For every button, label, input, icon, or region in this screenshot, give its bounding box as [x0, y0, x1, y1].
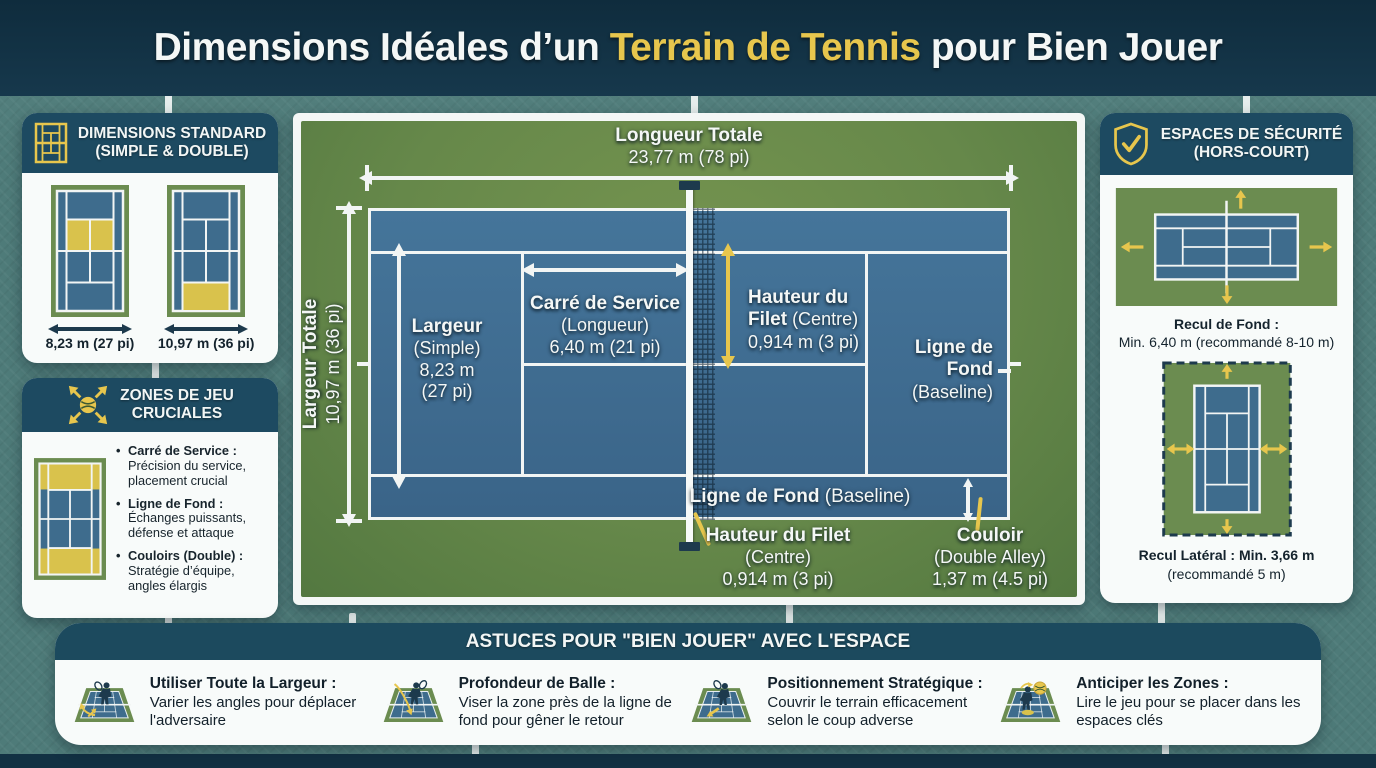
total-width-title: Largeur Totale [301, 299, 321, 430]
label-line: 1,37 m (4.5 pi) [900, 569, 1077, 590]
panel-dimensions-header: DIMENSIONS STANDARD (SIMPLE & DOUBLE) [22, 113, 278, 173]
zones-body: • Carré de Service : Précision du servic… [22, 432, 278, 602]
side-clearance-diagram [1161, 361, 1293, 537]
panel-security-header: ESPACES DE SÉCURITÉ (HORS-COURT) [1100, 113, 1353, 175]
label-line: Ligne de [863, 337, 993, 359]
net-mesh [692, 208, 715, 520]
net-post-cap [679, 181, 700, 190]
shield-check-icon [1111, 121, 1151, 167]
service-box-label: Carré de Service (Longueur) 6,40 m (21 p… [519, 293, 691, 358]
center-mark [1010, 362, 1021, 366]
total-length-label: Longueur Totale 23,77 m (78 pi) [489, 125, 889, 169]
tip-title: Utiliser Toute la Largeur : [150, 675, 378, 694]
singles-width-label: 8,23 m (27 pi) [46, 335, 135, 351]
label-line: Carré de Service [519, 293, 691, 315]
center-mark [357, 362, 368, 366]
zone-desc: Précision du service, placement crucial [128, 458, 246, 488]
doubles-court-diagram [167, 185, 245, 317]
panel-title: ESPACES DE SÉCURITÉ (HORS-COURT) [1161, 126, 1342, 163]
arrow-end-tick [336, 519, 362, 523]
tip-text: Anticiper les Zones : Lire le jeu pour s… [1076, 675, 1304, 731]
tip-text: Profondeur de Balle : Viser la zone près… [459, 675, 687, 731]
singles-width-label: Largeur (Simple) 8,23 m (27 pi) [393, 316, 501, 402]
total-width-value: 10,97 m (36 pi) [323, 303, 343, 424]
security-body: Recul de Fond : Min. 6,40 m (recommandé … [1100, 175, 1353, 593]
label-line: (Baseline) [863, 382, 993, 403]
label-line: (Centre) [787, 309, 858, 329]
title-highlight: Terrain de Tennis [610, 26, 921, 69]
tip-description: Lire le jeu pour se placer dans les espa… [1076, 694, 1304, 731]
runback-clearance-diagram [1114, 188, 1339, 306]
bullet-icon: • [116, 497, 120, 512]
infographic-page: Dimensions Idéales d’un Terrain de Tenni… [0, 0, 1376, 768]
label-line: (Longueur) [519, 315, 691, 336]
bullet-icon: • [116, 444, 120, 459]
runback-caption-bold: Recul de Fond : [1174, 316, 1279, 332]
main-court-diagram: Longueur Totale 23,77 m (78 pi) Largeur … [293, 113, 1085, 605]
baseline-bottom-label: Ligne de Fond (Baseline) [640, 486, 960, 508]
tennis-player-ball-icon [998, 671, 1063, 735]
list-item: • Ligne de Fond : Échanges puissants, dé… [116, 497, 270, 542]
label-line: 8,23 m [393, 360, 501, 381]
label-line: (Centre) [688, 547, 868, 568]
title-suffix: pour Bien Jouer [921, 26, 1223, 69]
panel-title-line1: ZONES DE JEU [120, 387, 234, 405]
court-surround: Longueur Totale 23,77 m (78 pi) Largeur … [301, 121, 1077, 597]
side-caption-rest: (recommandé 5 m) [1167, 566, 1285, 582]
net-height-arrow [726, 255, 730, 357]
leader-tick [998, 369, 1011, 373]
side-clearance-caption: Recul Latéral : Min. 3,66 m (recommandé … [1139, 546, 1315, 582]
runback-caption-rest: Min. 6,40 m (recommandé 8-10 m) [1119, 334, 1335, 350]
list-item: • Carré de Service : Précision du servic… [116, 444, 270, 489]
arrow-end-tick [336, 206, 362, 210]
panel-zones-de-jeu: ZONES DE JEU CRUCIALES • Carré de Serv [22, 378, 278, 618]
arrow-end-tick [365, 165, 369, 191]
label-line: 0,914 m (3 pi) [688, 569, 868, 590]
panel-dimensions-standard: DIMENSIONS STANDARD (SIMPLE & DOUBLE) 8 [22, 113, 278, 363]
total-length-value: 23,77 m (78 pi) [489, 147, 889, 168]
runback-caption: Recul de Fond : Min. 6,40 m (recommandé … [1119, 315, 1335, 351]
panel-title: DIMENSIONS STANDARD (SIMPLE & DOUBLE) [78, 125, 266, 162]
panel-title-line2: CRUCIALES [120, 405, 234, 423]
court-grid-icon [34, 122, 68, 164]
side-caption-bold: Recul Latéral : Min. 3,66 m [1139, 547, 1315, 563]
tennis-player-court-icon [72, 671, 137, 735]
label-rest: (Baseline) [820, 486, 911, 507]
zone-term: Carré de Service : [128, 444, 270, 459]
alley-width-arrow [966, 487, 970, 513]
tip-item: Utiliser Toute la Largeur : Varier les a… [72, 671, 378, 735]
label-line: (27 pi) [393, 381, 501, 402]
total-length-title: Longueur Totale [489, 125, 889, 147]
standard-courts: 8,23 m (27 pi) 10,97 m (36 pi) [22, 173, 278, 351]
tip-title: Positionnement Stratégique : [767, 675, 995, 694]
tip-text: Utiliser Toute la Largeur : Varier les a… [150, 675, 378, 731]
arrow-end-tick [1009, 165, 1013, 191]
panel-zones-header: ZONES DE JEU CRUCIALES [22, 378, 278, 432]
list-item: • Couloirs (Double) : Stratégie d’équipe… [116, 549, 270, 594]
bottom-strip [0, 754, 1376, 768]
label-line: Hauteur du [748, 287, 908, 309]
doubles-court-column: 10,97 m (36 pi) [158, 185, 255, 351]
tip-item: Anticiper les Zones : Lire le jeu pour s… [998, 671, 1304, 735]
tips-title: ASTUCES POUR "BIEN JOUER" AVEC L'ESPACE [466, 631, 910, 653]
label-line: (Simple) [393, 338, 501, 359]
label-line: (Double Alley) [900, 547, 1077, 568]
label-line: 6,40 m (21 pi) [519, 337, 691, 358]
label-line: Hauteur du Filet [688, 525, 868, 547]
zone-term: Couloirs (Double) : [128, 549, 270, 564]
tennis-player-court-icon [689, 671, 754, 735]
tennis-player-court-icon [381, 671, 446, 735]
page-title: Dimensions Idéales d’un Terrain de Tenni… [154, 26, 1223, 70]
tip-title: Profondeur de Balle : [459, 675, 687, 694]
panel-title: ZONES DE JEU CRUCIALES [120, 387, 234, 424]
total-length-arrow [371, 176, 1007, 180]
panel-espaces-securite: ESPACES DE SÉCURITÉ (HORS-COURT) [1100, 113, 1353, 603]
doubles-width-label: 10,97 m (36 pi) [158, 335, 255, 351]
label-line: Fond [863, 359, 993, 381]
tip-description: Couvrir le terrain efficacement selon le… [767, 694, 995, 731]
zones-list: • Carré de Service : Précision du servic… [116, 444, 270, 602]
label-line: Couloir [900, 525, 1077, 547]
tips-card: ASTUCES POUR "BIEN JOUER" AVEC L'ESPACE [55, 623, 1321, 745]
zone-term: Ligne de Fond : [128, 497, 270, 512]
tip-item: Positionnement Stratégique : Couvrir le … [689, 671, 995, 735]
zone-desc: Échanges puissants, défense et attaque [128, 510, 246, 540]
tip-text: Positionnement Stratégique : Couvrir le … [767, 675, 995, 731]
singles-court-diagram [51, 185, 129, 317]
label-bold: Ligne de Fond [690, 486, 820, 507]
tip-title: Anticiper les Zones : [1076, 675, 1304, 694]
panel-title-line1: ESPACES DE SÉCURITÉ [1161, 126, 1342, 144]
net-height-bottom-label: Hauteur du Filet (Centre) 0,914 m (3 pi) [688, 525, 868, 590]
zone-desc: Stratégie d’équipe, angles élargis [128, 563, 235, 593]
baseline-right-label: Ligne de Fond (Baseline) [863, 337, 993, 403]
width-measure-arrow [58, 327, 122, 331]
bullet-icon: • [116, 549, 120, 564]
tips-body: Utiliser Toute la Largeur : Varier les a… [55, 660, 1321, 745]
total-width-arrow [347, 213, 351, 515]
zones-court-diagram [34, 444, 106, 594]
tips-header: ASTUCES POUR "BIEN JOUER" AVEC L'ESPACE [55, 623, 1321, 660]
label-line: Largeur [393, 316, 501, 338]
ball-arrows-icon [66, 383, 110, 427]
label-line: Filet [748, 309, 787, 330]
title-prefix: Dimensions Idéales d’un [154, 26, 610, 69]
tip-description: Viser la zone près de la ligne de fond p… [459, 694, 687, 731]
alley-label: Couloir (Double Alley) 1,37 m (4.5 pi) [900, 525, 1077, 590]
panel-title-line2: (SIMPLE & DOUBLE) [78, 143, 266, 161]
tip-item: Profondeur de Balle : Viser la zone près… [381, 671, 687, 735]
panel-title-line1: DIMENSIONS STANDARD [78, 125, 266, 143]
page-header: Dimensions Idéales d’un Terrain de Tenni… [0, 0, 1376, 96]
tip-description: Varier les angles pour déplacer l'advers… [150, 694, 378, 731]
width-measure-arrow [174, 327, 238, 331]
panel-title-line2: (HORS-COURT) [1161, 144, 1342, 162]
service-length-arrow [533, 268, 677, 272]
singles-court-column: 8,23 m (27 pi) [46, 185, 135, 351]
